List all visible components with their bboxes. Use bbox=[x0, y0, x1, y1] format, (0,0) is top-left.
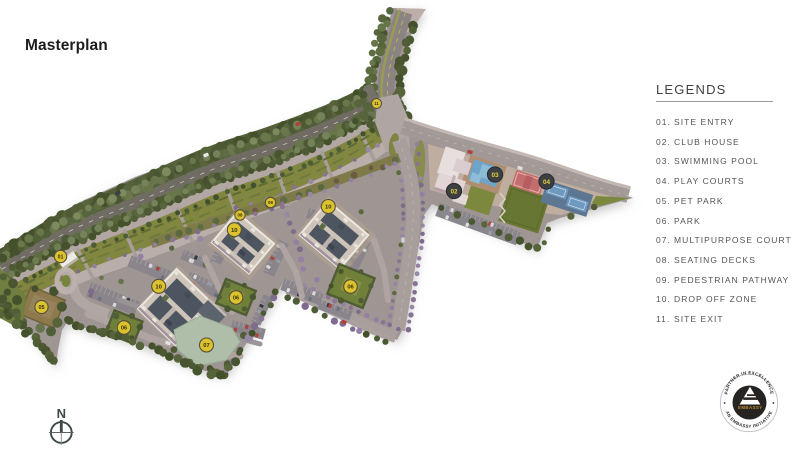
svg-text:06: 06 bbox=[233, 296, 239, 302]
svg-text:07: 07 bbox=[203, 343, 210, 349]
svg-text:EMBASSY: EMBASSY bbox=[738, 405, 763, 410]
svg-text:02: 02 bbox=[450, 188, 458, 195]
svg-text:10: 10 bbox=[325, 205, 332, 211]
svg-text:06: 06 bbox=[121, 326, 127, 332]
svg-text:06: 06 bbox=[347, 285, 353, 291]
svg-text:10: 10 bbox=[155, 284, 162, 290]
svg-text:11: 11 bbox=[374, 101, 379, 106]
svg-text:10: 10 bbox=[231, 228, 238, 234]
svg-text:03: 03 bbox=[491, 172, 499, 179]
svg-text:09: 09 bbox=[268, 200, 273, 205]
svg-text:01: 01 bbox=[58, 254, 64, 260]
svg-text:04: 04 bbox=[543, 179, 551, 186]
svg-text:05: 05 bbox=[38, 305, 44, 311]
svg-text:N: N bbox=[57, 406, 66, 421]
svg-text:08: 08 bbox=[238, 213, 243, 218]
